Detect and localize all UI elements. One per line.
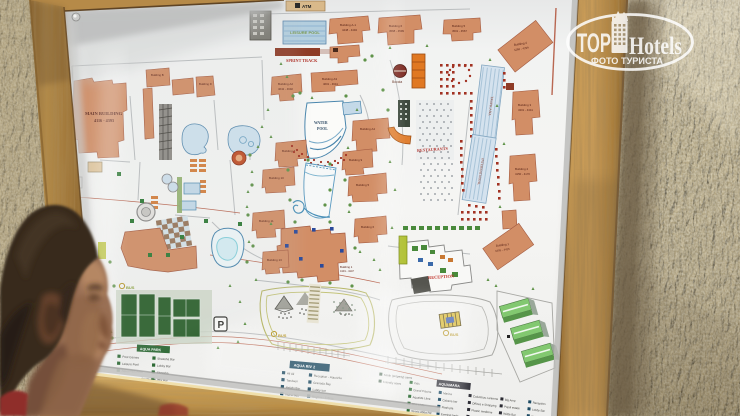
svg-text:4601 - 4641: 4601 - 4641 bbox=[323, 82, 338, 86]
svg-text:POOL: POOL bbox=[317, 127, 328, 131]
svg-text:Building 2: Building 2 bbox=[515, 167, 529, 171]
svg-text:Building 5: Building 5 bbox=[356, 183, 370, 187]
svg-text:Building A-1: Building A-1 bbox=[340, 23, 356, 27]
svg-text:Lobby Bar: Lobby Bar bbox=[157, 364, 171, 369]
svg-text:4101 - 4147: 4101 - 4147 bbox=[340, 269, 354, 273]
svg-text:4150 - 4170: 4150 - 4170 bbox=[515, 172, 530, 176]
svg-text:ATM: ATM bbox=[302, 4, 312, 9]
svg-text:4448 - 4494: 4448 - 4494 bbox=[342, 28, 357, 32]
svg-text:Building 6: Building 6 bbox=[361, 225, 375, 229]
svg-text:Wilde Bar: Wilde Bar bbox=[503, 412, 516, 416]
svg-text:4301 - 4341: 4301 - 4341 bbox=[518, 108, 533, 112]
svg-text:BUS: BUS bbox=[278, 333, 287, 338]
svg-text:Building 9: Building 9 bbox=[349, 158, 363, 162]
svg-text:Building 3: Building 3 bbox=[518, 103, 532, 107]
svg-text:Building A3: Building A3 bbox=[322, 77, 337, 81]
svg-text:4501 - 4567: 4501 - 4567 bbox=[452, 29, 467, 33]
svg-text:WATER: WATER bbox=[314, 121, 328, 125]
svg-text:Building 5: Building 5 bbox=[452, 24, 466, 28]
svg-text:TOP: TOP bbox=[577, 28, 611, 58]
svg-text:ФОТО ТУРИСТА: ФОТО ТУРИСТА bbox=[591, 56, 663, 67]
svg-text:Building A4: Building A4 bbox=[360, 127, 375, 131]
svg-text:Building 1: Building 1 bbox=[340, 265, 353, 269]
